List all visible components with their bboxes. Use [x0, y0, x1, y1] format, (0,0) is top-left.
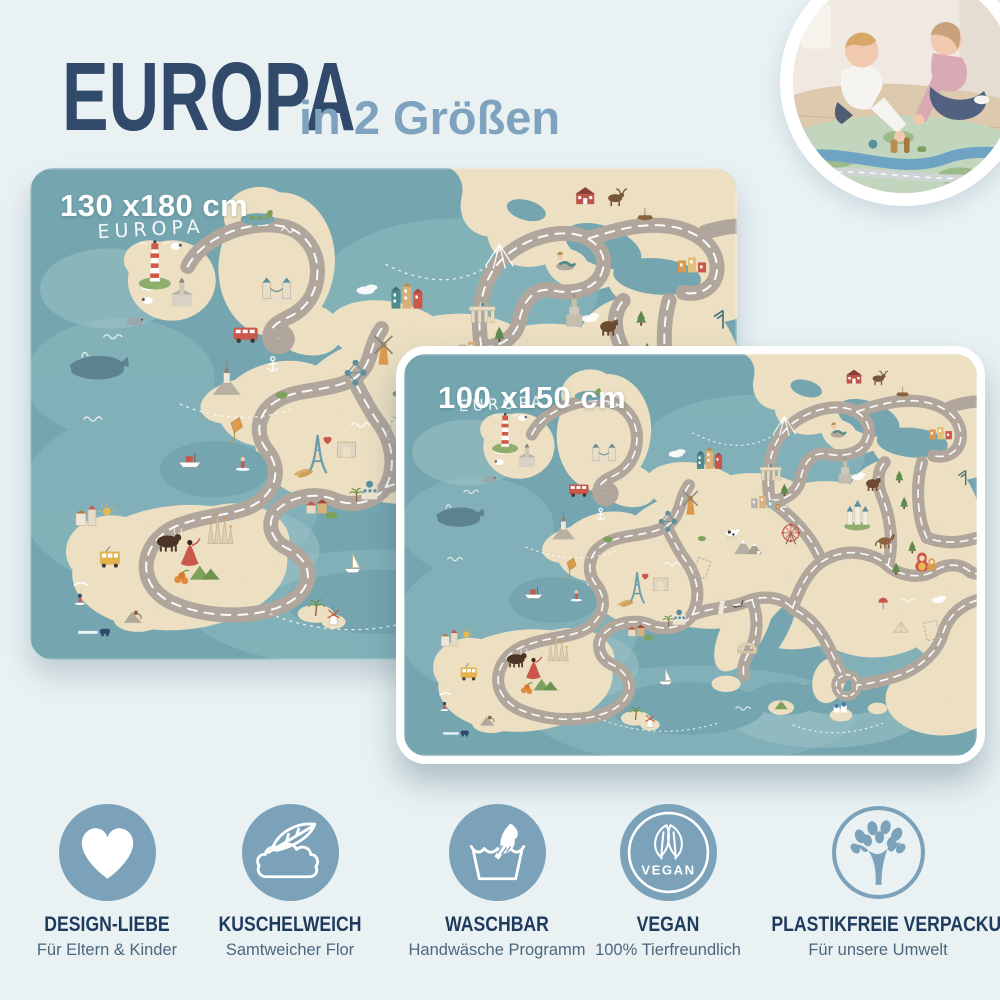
feature-title: DESIGN-LIEBE: [25, 912, 189, 937]
kids-playing-photo: [780, 0, 1000, 206]
feature-subtitle: Für unsere Umwelt: [748, 941, 1000, 960]
feature-design-liebe: DESIGN-LIEBE Für Eltern & Kinder: [7, 804, 207, 960]
vegan-badge-text: VEGAN: [641, 863, 695, 878]
feature-title: WASCHBAR: [415, 912, 579, 937]
size-label-large: 130 x180 cm: [60, 188, 248, 224]
features-row: DESIGN-LIEBE Für Eltern & Kinder KUSCHEL…: [0, 804, 1000, 994]
play-mat-small-frame: 100 x150 cm: [396, 346, 985, 764]
feature-title: PLASTIKFREIE VERPACKUNG: [771, 912, 984, 937]
feature-subtitle: Handwäsche Programm: [397, 941, 597, 960]
feature-title: KUSCHELWEICH: [208, 912, 372, 937]
feature-title: VEGAN: [586, 912, 750, 937]
feature-subtitle: 100% Tierfreundlich: [568, 941, 768, 960]
feature-plastikfrei: PLASTIKFREIE VERPACKUNG Für unsere Umwel…: [748, 804, 1000, 960]
heart-icon: [59, 804, 156, 901]
size-label-small: 100 x150 cm: [438, 380, 626, 416]
vegan-badge-icon: VEGAN: [620, 804, 717, 901]
feature-waschbar: WASCHBAR Handwäsche Programm: [397, 804, 597, 960]
handwash-icon: [449, 804, 546, 901]
page-subtitle: in 2 Größen: [299, 90, 560, 145]
kids-playing-illustration: [793, 0, 1000, 193]
feather-cloud-icon: [242, 804, 339, 901]
feature-vegan: VEGAN VEGAN 100% Tierfreundlich: [568, 804, 768, 960]
feature-subtitle: Für Eltern & Kinder: [7, 941, 207, 960]
page: { "header": { "title": "EUROPA", "subtit…: [0, 0, 1000, 1000]
feature-subtitle: Samtweicher Flor: [190, 941, 390, 960]
tree-icon: [830, 804, 927, 901]
play-mat-small: 100 x150 cm: [404, 354, 977, 756]
feature-kuschelweich: KUSCHELWEICH Samtweicher Flor: [190, 804, 390, 960]
